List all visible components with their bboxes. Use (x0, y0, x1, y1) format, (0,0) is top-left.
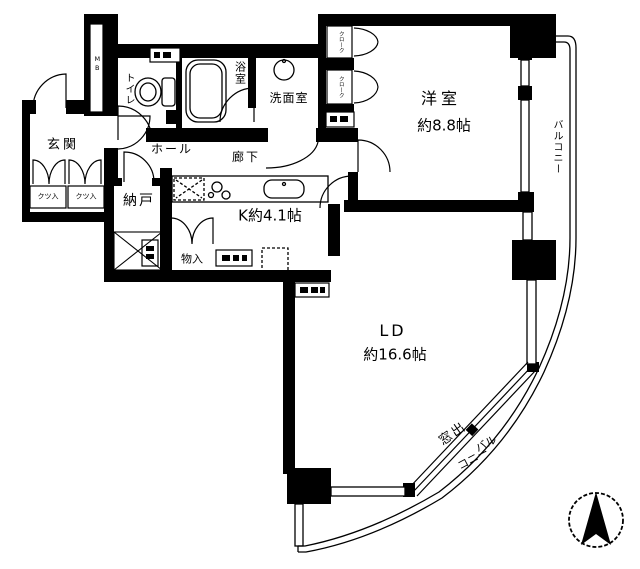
floor-plan: 玄関 トイレ 浴室 洗面室 ホール 廊下 納戸 K約4.1帖 物入 クツ入 クツ… (0, 0, 640, 569)
floor-plan-drawing (0, 0, 640, 569)
pipe-space-box (142, 240, 158, 266)
storage-door (124, 152, 154, 182)
cloak-label-1: クローク (337, 31, 343, 53)
shoe-box-label-2: クツ入 (76, 194, 97, 201)
meter-box-label: MB (94, 55, 101, 73)
hall-label: ホール (151, 143, 193, 155)
closet-label: 物入 (181, 254, 203, 265)
corridor-label: 廊下 (232, 151, 260, 163)
entrance-room-label: 玄関 (47, 139, 79, 152)
bathtub-icon (186, 60, 226, 122)
compass-north-icon (569, 492, 623, 547)
toilet-icon (162, 78, 175, 106)
hall-door (118, 116, 150, 149)
shoe-box-label-1: クツ入 (38, 194, 59, 201)
balcony-side-label: バルコニー (551, 120, 561, 175)
washroom-door (266, 142, 318, 168)
cloak-label-2: クローク (337, 76, 343, 98)
western-room-door (358, 140, 390, 172)
washroom-label: 洗面室 (269, 92, 308, 104)
entrance-door (33, 74, 66, 108)
bay-window-lines (409, 362, 536, 496)
western-room-label: 洋室 (421, 91, 461, 107)
western-room-size-label: 約8.8帖 (417, 119, 471, 134)
living-dining-label: LD (379, 323, 406, 339)
stove-icon (212, 182, 222, 192)
refrigerator-space (262, 248, 288, 272)
bath-room-label: 浴室 (235, 61, 246, 85)
kitchen-label: K約4.1帖 (238, 209, 302, 224)
storage-room-label: 納戸 (123, 194, 155, 208)
toilet-room-label: トイレ (123, 73, 133, 106)
living-dining-size-label: 約16.6帖 (363, 348, 426, 363)
